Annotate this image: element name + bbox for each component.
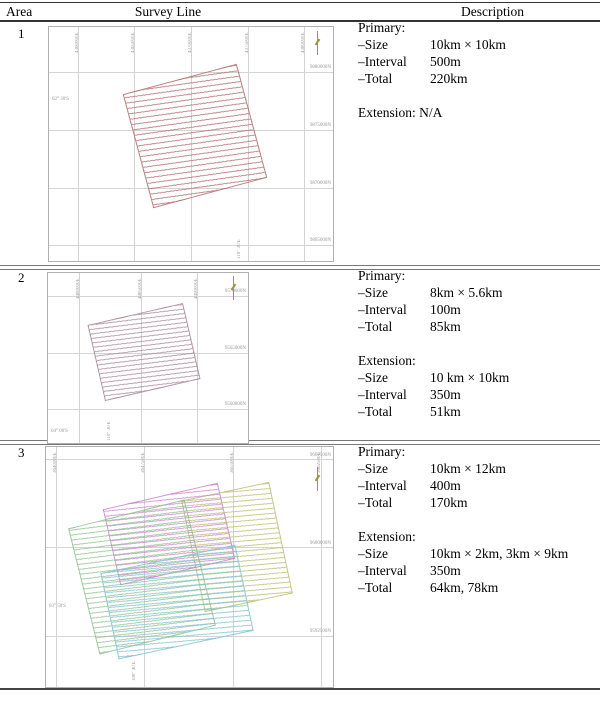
- survey-map-area-1: 4360000E 4365000E 4370000E 4375000E 4380…: [48, 26, 334, 262]
- area-number: 3: [18, 445, 25, 461]
- desc-line-size: –Size10km × 10km: [358, 37, 506, 53]
- table-bottom-rule: [0, 688, 600, 690]
- desc-value: 350m: [430, 563, 461, 578]
- desc-value: 10km × 10km: [430, 37, 506, 52]
- x-tick-label: 4360000E: [75, 29, 80, 53]
- x-tick-label: 4490000E: [194, 275, 199, 299]
- table-top-rule: [0, 2, 600, 3]
- col-header-survey-line: Survey Line: [88, 4, 248, 20]
- y-tick-label: 9560000N: [225, 402, 246, 408]
- desc-value: 64km, 78km: [430, 580, 498, 595]
- latitude-label: 02° 30'S: [52, 97, 69, 102]
- desc-label: –Total: [358, 71, 430, 87]
- desc-label: –Interval: [358, 387, 430, 403]
- desc-value: 220km: [430, 71, 468, 86]
- north-arrow-icon: [230, 276, 237, 300]
- desc-label: –Size: [358, 285, 430, 301]
- desc-label: –Total: [358, 404, 430, 420]
- desc-label: –Size: [358, 37, 430, 53]
- desc-label: –Total: [358, 580, 430, 596]
- longitude-label: 118° 30'E: [237, 233, 242, 259]
- desc-value: 170km: [430, 495, 468, 510]
- desc-line-interval: –Interval100m: [358, 302, 461, 318]
- desc-line-total: –Total85km: [358, 319, 461, 335]
- x-tick-label: 3640000E: [53, 449, 58, 473]
- x-tick-label: 4480000E: [76, 275, 81, 299]
- grid-line: [49, 72, 333, 73]
- latitude-label: 03° 50'S: [49, 604, 66, 609]
- paper-table: Area Survey Line Description 1 2 3 43600…: [0, 0, 600, 704]
- survey-map-area-3: 3640000E 3647500E 3655000E 3662500E 9607…: [45, 446, 334, 688]
- desc-value: 51km: [430, 404, 461, 419]
- x-tick-label: 3655000E: [230, 449, 235, 473]
- longitude-label: 110° 30'E: [107, 415, 112, 441]
- desc-label: –Total: [358, 319, 430, 335]
- y-tick-label: 9880000N: [310, 65, 331, 71]
- desc-line-interval: –Interval350m: [358, 387, 461, 403]
- desc-value: 85km: [430, 319, 461, 334]
- desc-label: –Interval: [358, 478, 430, 494]
- desc-extension-heading: Extension:: [358, 353, 416, 369]
- x-tick-label: 4375000E: [245, 29, 250, 53]
- desc-extension-heading: Extension:: [358, 529, 416, 545]
- desc-value: 10km × 2km, 3km × 9km: [430, 546, 568, 561]
- north-arrow-icon: [314, 31, 321, 55]
- desc-line-total: –Total64km, 78km: [358, 580, 498, 596]
- desc-line-size: –Size10km × 2km, 3km × 9km: [358, 546, 568, 562]
- desc-line-total: –Total170km: [358, 495, 468, 511]
- survey-map-area-2: 4480000E 4485000E 4490000E 9570000N 9565…: [47, 272, 249, 444]
- x-tick-label: 4485000E: [138, 275, 143, 299]
- area-number: 1: [18, 26, 25, 42]
- y-tick-label: 9870000N: [310, 181, 331, 187]
- desc-value: 8km × 5.6km: [430, 285, 503, 300]
- desc-extension-heading: Extension: N/A: [358, 105, 442, 121]
- desc-value: 100m: [430, 302, 461, 317]
- y-tick-label: 9875000N: [310, 123, 331, 129]
- header-underline-rule: [0, 20, 600, 22]
- desc-label: –Total: [358, 495, 430, 511]
- desc-label: –Interval: [358, 302, 430, 318]
- grid-line: [78, 27, 79, 261]
- x-tick-label: 4380000E: [301, 29, 306, 53]
- x-tick-label: 4365000E: [131, 29, 136, 53]
- x-tick-label: 4370000E: [188, 29, 193, 53]
- x-tick-label: 3647500E: [141, 449, 146, 473]
- grid-line: [46, 459, 333, 460]
- grid-line: [134, 27, 135, 261]
- desc-line-total: –Total220km: [358, 71, 468, 87]
- col-header-area: Area: [6, 4, 32, 20]
- y-tick-label: 9600000N: [310, 541, 331, 547]
- row-separator-rule: [0, 265, 600, 270]
- grid-line: [304, 27, 305, 261]
- desc-value: 10 km × 10km: [430, 370, 509, 385]
- grid-line: [56, 447, 57, 687]
- latitude-label: 04° 00'S: [51, 429, 68, 434]
- desc-label: –Size: [358, 461, 430, 477]
- desc-primary-heading: Primary:: [358, 20, 405, 36]
- survey-line-block-primary: [123, 64, 268, 209]
- desc-label: –Interval: [358, 563, 430, 579]
- area-number: 2: [18, 270, 25, 286]
- desc-label: –Size: [358, 370, 430, 386]
- grid-line: [49, 245, 333, 246]
- desc-value: 350m: [430, 387, 461, 402]
- north-arrow-icon: [314, 467, 321, 491]
- grid-line: [48, 409, 248, 410]
- desc-label: –Size: [358, 546, 430, 562]
- grid-line: [321, 447, 322, 687]
- y-tick-label: 9865000N: [310, 238, 331, 244]
- desc-value: 500m: [430, 54, 461, 69]
- desc-primary-heading: Primary:: [358, 444, 405, 460]
- longitude-label: 108° 40'E: [132, 655, 137, 681]
- desc-line-total: –Total51km: [358, 404, 461, 420]
- desc-value: 400m: [430, 478, 461, 493]
- desc-primary-heading: Primary:: [358, 268, 405, 284]
- desc-line-size: –Size8km × 5.6km: [358, 285, 503, 301]
- y-tick-label: 9607500N: [310, 453, 331, 459]
- desc-label: –Interval: [358, 54, 430, 70]
- y-tick-label: 9592500N: [310, 629, 331, 635]
- desc-value: 10km × 12km: [430, 461, 506, 476]
- desc-line-interval: –Interval500m: [358, 54, 461, 70]
- desc-line-interval: –Interval400m: [358, 478, 461, 494]
- desc-line-interval: –Interval350m: [358, 563, 461, 579]
- desc-line-size: –Size10km × 12km: [358, 461, 506, 477]
- y-tick-label: 9565000N: [225, 346, 246, 352]
- survey-line-block-primary: [87, 303, 200, 401]
- desc-line-size: –Size10 km × 10km: [358, 370, 509, 386]
- col-header-description: Description: [400, 4, 585, 20]
